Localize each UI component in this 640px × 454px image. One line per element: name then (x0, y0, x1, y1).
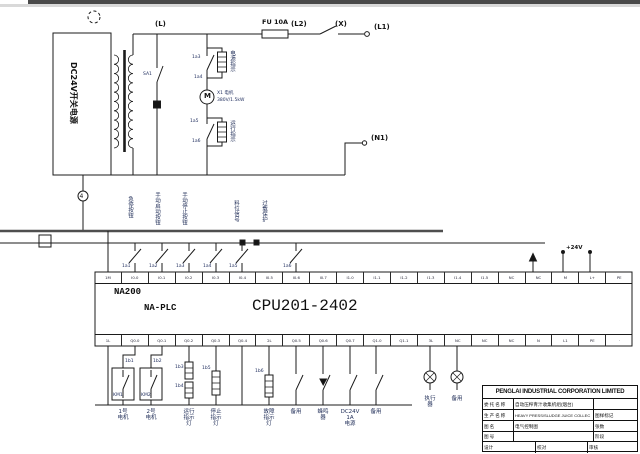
terminal-N1 (362, 141, 366, 145)
titleblock-row3-label: 图名 (483, 421, 513, 431)
output-label-3: 运行 指示 灯 (183, 409, 194, 427)
titleblock-auditor: 审核 (587, 442, 637, 453)
terminal-cell: NC (445, 335, 472, 346)
switch-X (320, 26, 336, 34)
output-label-2: 2号 电机 (145, 409, 156, 421)
titleblock-row3-value: 电气控制图 (513, 421, 593, 431)
relay-coil-1 (185, 362, 193, 379)
output-label-6: 备用 (290, 409, 301, 415)
km2-label: KM2 (141, 393, 151, 398)
output-tag-3: 1b3 (175, 365, 184, 370)
terminal-cell: Q0.2 (176, 335, 203, 346)
label-fuse: FU 10A (262, 19, 288, 26)
company-name: PENGLAI INDUSTRIAL CORPORATION LIMITED (483, 386, 637, 398)
titleblock-row2-right: 图样标记 (593, 410, 637, 420)
output-tag-4: 1b4 (175, 384, 184, 389)
input-tag-6: 1a6 (283, 264, 291, 269)
control-switch-tag: SA1 (143, 72, 152, 77)
terminal-cell: NC (499, 335, 526, 346)
terminal-cell: Q1.0 (364, 335, 391, 346)
input-label-1: 急停按钮 (127, 196, 133, 218)
indicator-coil-2 (265, 375, 273, 397)
plc-model: NA200 (114, 287, 141, 297)
terminal-cell: I1.0 (337, 272, 364, 283)
titleblock-row1-label: 委托名称 (483, 399, 513, 409)
terminal-cell: I1.5 (472, 272, 499, 283)
node-4-label: 4 (80, 193, 84, 200)
plc-top-terminal-row: 1MI0.0I0.1I0.2I0.3I0.4I0.5I0.6I0.7I1.0I1… (95, 272, 632, 284)
psu-label: DC24V开关电源 (68, 62, 79, 124)
terminal-cell: N (526, 335, 553, 346)
label-L2: (L2) (291, 21, 307, 28)
terminal-cell: I1.3 (418, 272, 445, 283)
output-label-1: 1号 电机 (117, 409, 128, 421)
up-arrow (530, 254, 537, 262)
relay-coil-2 (185, 382, 193, 398)
terminal-cell: Q0.3 (203, 335, 230, 346)
fuse-FU (262, 30, 288, 38)
output-label-9: 备用 (370, 409, 381, 415)
terminal-cell: I0.6 (283, 272, 310, 283)
rail-terminal-block (39, 235, 51, 247)
node-mark-top (88, 11, 100, 23)
titleblock-row1-value: 自动压榨青汁收集机组(烟台) (513, 399, 593, 409)
transformer-secondary-winding (128, 55, 133, 148)
plc-24v-label: +24V (566, 245, 583, 252)
upper-lamp-label: 电源指示 (229, 50, 235, 72)
lamp-tag-1: 1a3 (192, 55, 200, 60)
input-tag-5: 1a5 (229, 264, 237, 269)
lamp-tag-3: 1a5 (190, 119, 198, 124)
terminal-cell: I1.2 (391, 272, 418, 283)
plc-series: NA-PLC (144, 303, 176, 313)
titleblock-row1-right (593, 399, 637, 409)
input-tag-1: 1a1 (122, 264, 130, 269)
terminal-cell: PE (606, 272, 632, 283)
output-label-7: 蜂鸣 器 (317, 409, 328, 421)
terminal-cell: 3L (418, 335, 445, 346)
output-tag-5: 1b5 (202, 366, 211, 371)
input-tag-4: 1a4 (203, 264, 211, 269)
terminal-cell: Q0.1 (149, 335, 176, 346)
terminal-cell: Q0.6 (310, 335, 337, 346)
lamp-tag-4: 1a6 (192, 139, 200, 144)
input-label-2: 手动启动按钮 (154, 192, 160, 225)
terminal-cell: L1 (552, 335, 579, 346)
titleblock-row2-value: HEAVY PRESS/SLUDGE JUICE COLLEC (513, 410, 593, 420)
titleblock-row4-label: 图号 (483, 432, 513, 441)
terminal-cell: I1.4 (445, 272, 472, 283)
terminal-cell: NC (472, 335, 499, 346)
output-label-11: 备用 (451, 396, 462, 402)
terminal-cell: 1L (95, 335, 122, 346)
titleblock-row3-right: 张数 (593, 421, 637, 431)
terminal-cell: I0.7 (310, 272, 337, 283)
output-tag-2: 1b2 (153, 359, 162, 364)
input-label-3: 手动停止按钮 (181, 192, 187, 225)
output-label-4: 停止 指示 灯 (210, 409, 221, 427)
upper-branch-switch (207, 55, 214, 70)
plc-bottom-terminal-row: 1LQ0.0Q0.1Q0.2Q0.3Q0.42LQ0.5Q0.6Q0.7Q1.0… (95, 334, 632, 346)
terminal-cell: NC (526, 272, 553, 283)
km1-label: KM1 (113, 393, 123, 398)
terminal-cell: Q0.7 (337, 335, 364, 346)
power-supply-box (53, 33, 111, 175)
terminal-cell: I1.1 (364, 272, 391, 283)
motor-rating: 380V/1.5kW (217, 98, 244, 103)
plc-24v-feeds (533, 253, 590, 272)
input-tag-2: 1a2 (149, 264, 157, 269)
terminal-cell: · (606, 335, 632, 346)
input-label-4: 料位信号 (233, 200, 239, 222)
terminal-cell: I0.5 (256, 272, 283, 283)
terminal-cell: L+ (579, 272, 606, 283)
control-branch-fuse (154, 101, 161, 108)
label-L1: (L1) (374, 24, 390, 31)
terminal-cell: Q0.4 (230, 335, 257, 346)
terminal-cell: I0.3 (203, 272, 230, 283)
terminal-cell: I0.1 (149, 272, 176, 283)
terminal-cell: Q0.0 (122, 335, 149, 346)
control-branch-switch (157, 66, 163, 82)
transformer-primary-winding (114, 55, 119, 148)
titleblock-designer: 设计 (483, 442, 535, 453)
lower-branch-switch (207, 124, 214, 139)
motor-name: X1 电机 (217, 91, 233, 96)
motor-symbol: M (204, 93, 211, 100)
terminal-cell: NC (499, 272, 526, 283)
terminal-cell: Q1.1 (391, 335, 418, 346)
input-tag-3: 1a3 (176, 264, 184, 269)
output-tag-6: 1b6 (255, 369, 264, 374)
titleblock-row2-label: 生产名称 (483, 410, 513, 420)
terminal-cell: 2L (256, 335, 283, 346)
terminal-L1 (365, 32, 370, 37)
schematic-page: DC24V开关电源 4 (L) FU 10A (L2) (X) (L1) (N1… (0, 0, 640, 454)
titleblock-checker: 校对 (535, 442, 587, 453)
terminal-cell: 1M (95, 272, 122, 283)
input-label-5: 过载保护 (261, 200, 267, 222)
terminal-cell: M (552, 272, 579, 283)
label-N1: (N1) (371, 135, 388, 142)
label-X: (X) (335, 21, 347, 28)
output-tag-1: 1b1 (125, 359, 134, 364)
output-label-5: 故障 指示 灯 (263, 409, 274, 427)
terminal-cell: Q0.5 (283, 335, 310, 346)
label-L: (L) (155, 21, 166, 28)
rail-tap-2 (254, 240, 259, 245)
plc-cpu: CPU201-2402 (252, 297, 358, 315)
terminal-cell: PE (579, 335, 606, 346)
output-label-10: 执行 器 (424, 396, 435, 408)
title-block: PENGLAI INDUSTRIAL CORPORATION LIMITED 委… (482, 385, 638, 452)
titleblock-row4-right: 阶段 (593, 432, 637, 441)
titleblock-row4-value (513, 432, 593, 441)
lower-lamp-label: 运行指示 (229, 120, 235, 142)
terminal-cell: I0.0 (122, 272, 149, 283)
lamp-tag-2: 1a4 (194, 75, 202, 80)
terminal-cell: I0.2 (176, 272, 203, 283)
output-label-8: DC24V 1A 电源 (341, 409, 360, 427)
terminal-cell: I0.4 (230, 272, 257, 283)
